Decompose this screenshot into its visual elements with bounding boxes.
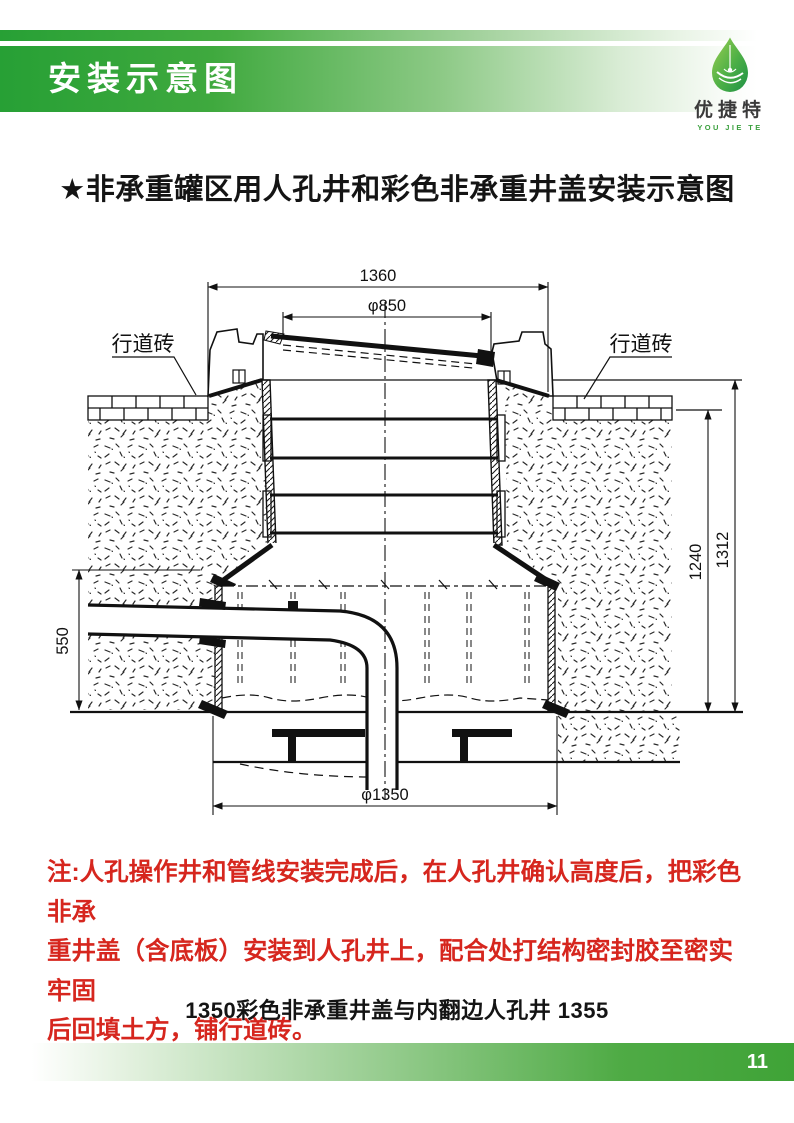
note-line: 注:人孔操作井和管线安装完成后，在人孔井确认高度后，把彩色非承 — [47, 853, 753, 932]
brand-logo: 优捷特 YOU JIE TE — [678, 36, 782, 132]
manhole-cover — [271, 336, 495, 368]
page-header-title: 安装示意图 — [48, 46, 243, 112]
svg-text:行道砖: 行道砖 — [610, 333, 673, 356]
dim-base-diameter-value: φ1350 — [361, 786, 408, 804]
shaft-ring-clamps — [263, 415, 505, 537]
dim-left-height-value: 550 — [54, 627, 72, 655]
shaft-ring-joints — [270, 419, 498, 533]
document-page: 安装示意图 优捷特 YOU JIE TE ★非承重罐区用人孔井和彩色非承重井盖安… — [0, 0, 794, 1123]
cover-latch — [476, 349, 495, 367]
svg-text:行道砖: 行道砖 — [112, 333, 175, 356]
pavement-label-left: 行道砖 — [112, 333, 197, 395]
header-accent-strip — [0, 30, 757, 41]
section-title: ★非承重罐区用人孔井和彩色非承重井盖安装示意图 — [0, 166, 794, 208]
brand-romanization: YOU JIE TE — [678, 123, 782, 132]
pavement-bricks-right — [553, 396, 672, 420]
installation-cross-section-diagram: 1360 φ850 550 1240 1312 φ1350 行道砖 — [0, 265, 794, 845]
figure-caption: 1350彩色非承重井盖与内翻边人孔井 1355 — [0, 993, 794, 1025]
brand-name: 优捷特 — [678, 95, 782, 122]
pavement-bricks-left — [88, 396, 208, 420]
dim-top-width-value: 1360 — [360, 267, 397, 285]
page-number: 11 — [747, 1043, 768, 1081]
dim-depth-inner-value: 1240 — [687, 544, 705, 581]
footer-bar: 11 — [0, 1043, 794, 1081]
pavement-label-right: 行道砖 — [584, 333, 673, 399]
header-bar: 安装示意图 — [0, 46, 757, 112]
dim-cover-diameter-value: φ850 — [368, 297, 406, 315]
dim-depth-outer-value: 1312 — [714, 532, 732, 569]
water-drop-leaf-icon — [706, 36, 754, 94]
